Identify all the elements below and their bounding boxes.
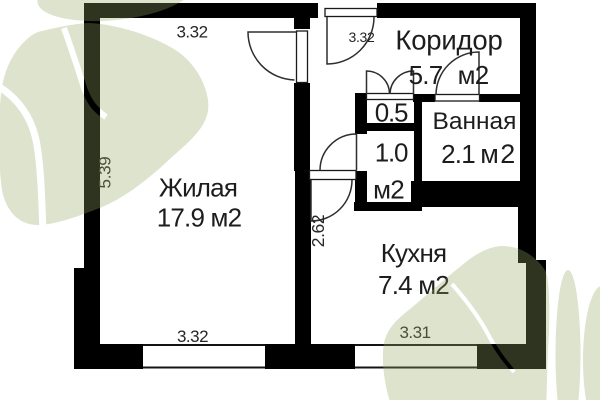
svg-text:м2: м2 xyxy=(458,60,489,90)
svg-text:3.32: 3.32 xyxy=(176,23,207,42)
svg-text:5.7: 5.7 xyxy=(409,60,443,90)
svg-text:1.0: 1.0 xyxy=(375,138,408,168)
svg-text:м2: м2 xyxy=(480,139,517,169)
svg-text:17.9 м2: 17.9 м2 xyxy=(157,203,242,233)
svg-text:0.5: 0.5 xyxy=(375,98,408,128)
svg-text:2.1: 2.1 xyxy=(441,139,475,169)
svg-text:2.62: 2.62 xyxy=(308,215,328,247)
svg-text:Коридор: Коридор xyxy=(395,25,502,56)
svg-text:Ванная: Ванная xyxy=(433,108,517,135)
svg-text:3.32: 3.32 xyxy=(177,327,208,346)
svg-text:3.32: 3.32 xyxy=(348,29,375,45)
svg-text:Жилая: Жилая xyxy=(159,173,237,203)
svg-text:м2: м2 xyxy=(373,175,404,205)
svg-text:Кухня: Кухня xyxy=(381,238,447,268)
